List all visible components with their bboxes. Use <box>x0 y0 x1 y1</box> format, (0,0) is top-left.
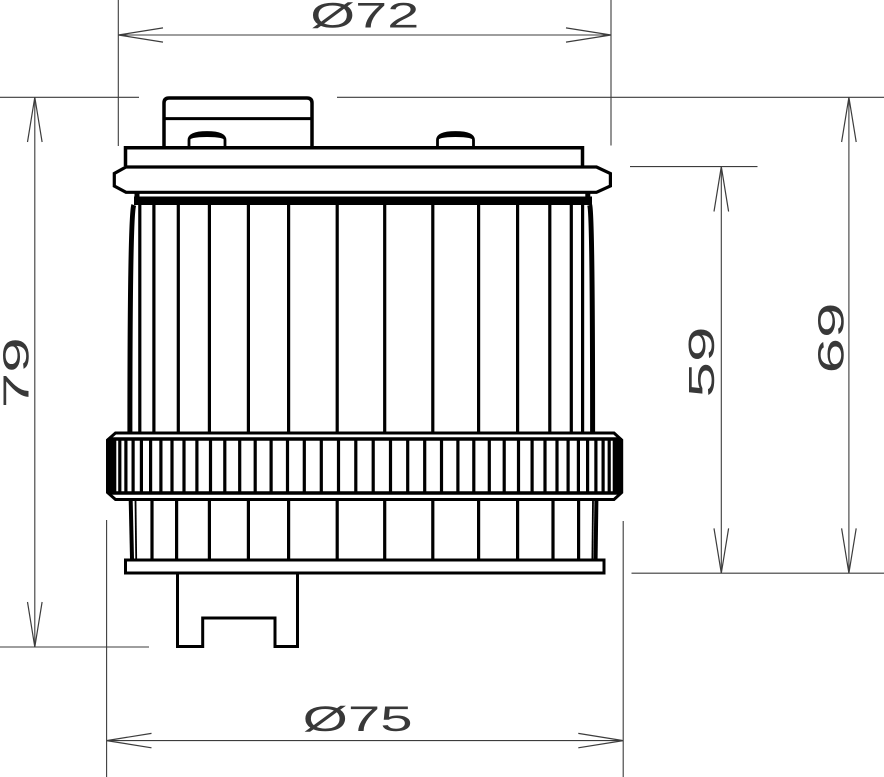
svg-text:Ø72: Ø72 <box>310 0 419 36</box>
svg-text:Ø75: Ø75 <box>303 700 413 739</box>
svg-text:59: 59 <box>681 327 722 398</box>
svg-text:79: 79 <box>0 337 37 408</box>
svg-text:69: 69 <box>810 303 851 374</box>
